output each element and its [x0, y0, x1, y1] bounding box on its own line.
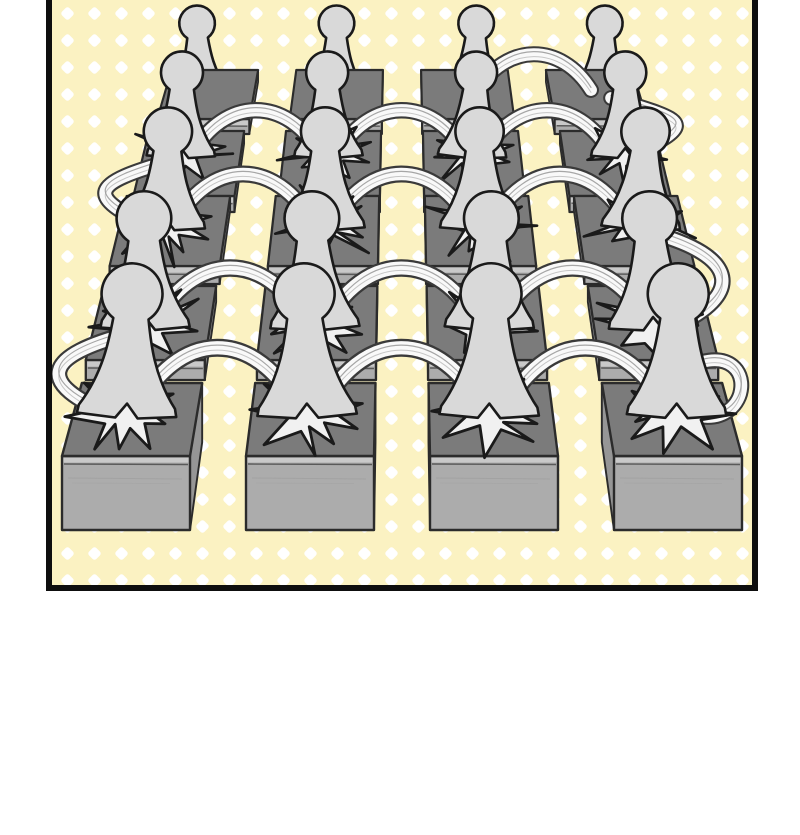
block-front-face [246, 456, 374, 530]
block-front-sketch-line [440, 483, 538, 484]
block-front-edge-line [616, 464, 740, 465]
panel-interior [52, 0, 752, 585]
block-front-sketch-line [256, 483, 354, 484]
block-front-highlight [432, 458, 557, 463]
block-front-highlight [64, 458, 189, 463]
comic-panel [0, 0, 800, 835]
block-front-sketch-line [624, 483, 722, 484]
block-front-highlight [616, 458, 741, 463]
block-front-highlight [248, 458, 373, 463]
panel-frame-right [752, 0, 758, 591]
block-front-face [614, 456, 742, 530]
block-front-sketch-line [72, 483, 170, 484]
block-front-edge-line [248, 464, 372, 465]
block-front-face [430, 456, 558, 530]
block-front-edge-line [64, 464, 188, 465]
panel-frame-left [46, 0, 52, 591]
block-front-face [62, 456, 190, 530]
comic-page [0, 0, 800, 835]
block-front-edge-line [432, 464, 556, 465]
panel-frame-bottom [46, 585, 758, 591]
